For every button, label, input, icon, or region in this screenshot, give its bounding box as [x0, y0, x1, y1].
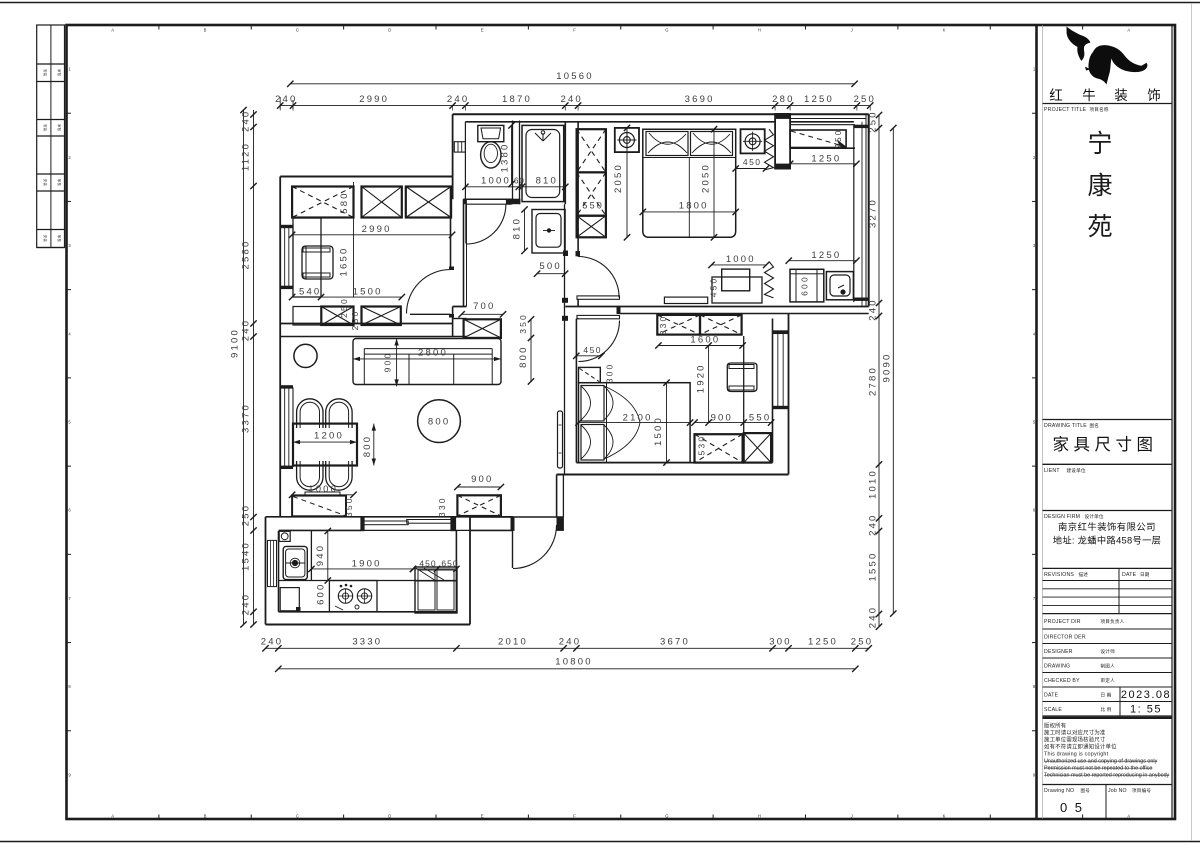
svg-text:9090: 9090 [882, 353, 893, 383]
svg-text:350: 350 [344, 496, 354, 517]
svg-text:C: C [296, 28, 299, 33]
svg-text:H: H [758, 814, 761, 819]
svg-text:1650: 1650 [338, 247, 349, 277]
svg-text:1920: 1920 [695, 363, 706, 393]
svg-text:1000: 1000 [726, 254, 756, 265]
svg-text:F: F [573, 814, 576, 819]
svg-text:250: 250 [851, 637, 873, 648]
svg-text:2050: 2050 [613, 163, 624, 193]
svg-text:580: 580 [339, 191, 350, 213]
svg-text:350: 350 [518, 313, 528, 334]
svg-text:J: J [851, 28, 853, 33]
svg-text:PROJECT DIR: PROJECT DIR [1044, 619, 1081, 625]
svg-text:1500: 1500 [353, 287, 383, 298]
svg-text:D: D [388, 814, 391, 819]
svg-text:2780: 2780 [868, 366, 879, 396]
svg-text:红: 红 [1049, 88, 1063, 103]
svg-text:项目负责人: 项目负责人 [1101, 618, 1125, 625]
svg-text:700: 700 [473, 301, 495, 312]
svg-text:K: K [943, 28, 946, 33]
svg-text:施工单位需现场核验尺寸: 施工单位需现场核验尺寸 [1044, 736, 1106, 744]
svg-text:E: E [481, 814, 484, 819]
svg-text:审核: 审核 [57, 235, 62, 243]
svg-text:250: 250 [339, 297, 349, 318]
svg-text:530: 530 [697, 435, 707, 456]
svg-text:240: 240 [241, 593, 252, 615]
svg-text:600: 600 [316, 582, 327, 604]
svg-text:1120: 1120 [241, 142, 252, 171]
svg-text:3330: 3330 [352, 637, 382, 648]
svg-text:900: 900 [383, 352, 393, 373]
svg-text:1800: 1800 [679, 201, 709, 212]
svg-text:3690: 3690 [685, 94, 715, 105]
svg-text:D: D [388, 28, 391, 33]
svg-text:宁: 宁 [1087, 130, 1112, 158]
svg-text:240: 240 [559, 637, 581, 648]
svg-text:审核: 审核 [57, 179, 62, 187]
svg-text:G: G [665, 28, 668, 33]
svg-text:南京红牛装饰有限公司: 南京红牛装饰有限公司 [1058, 521, 1156, 532]
svg-text:项目名称: 项目名称 [1090, 106, 1109, 113]
svg-text:1250: 1250 [808, 637, 838, 648]
svg-text:F: F [573, 28, 576, 33]
svg-text:2023.08: 2023.08 [1121, 689, 1171, 701]
svg-text:2010: 2010 [498, 637, 528, 648]
svg-text:G: G [665, 814, 668, 819]
svg-text:描述: 描述 [1079, 571, 1089, 578]
svg-text:安装: 安装 [43, 235, 48, 243]
svg-text:450: 450 [583, 345, 602, 355]
svg-text:250: 250 [868, 110, 879, 132]
svg-text:安装: 安装 [43, 69, 48, 77]
svg-text:审定人: 审定人 [1101, 677, 1116, 684]
svg-text:J: J [851, 814, 853, 819]
svg-text:900: 900 [471, 474, 493, 485]
svg-text:饰: 饰 [1147, 88, 1161, 103]
svg-text:Unauthorized use and copying o: Unauthorized use and copying of drawings… [1044, 759, 1158, 765]
svg-text:项目编号: 项目编号 [1132, 787, 1151, 794]
svg-text:330: 330 [437, 496, 447, 517]
svg-text:9100: 9100 [230, 328, 241, 358]
svg-text:REVISIONS: REVISIONS [1044, 572, 1074, 578]
svg-text:比 例: 比 例 [1101, 706, 1112, 713]
svg-text:550: 550 [749, 412, 771, 423]
svg-text:550: 550 [582, 201, 604, 211]
svg-text:810: 810 [536, 176, 558, 187]
svg-text:1380: 1380 [500, 143, 511, 173]
svg-text:DESIGNER: DESIGNER [1044, 649, 1073, 655]
svg-text:装: 装 [1114, 88, 1128, 103]
svg-text:DATE: DATE [1122, 572, 1137, 578]
svg-text:1900: 1900 [352, 559, 382, 570]
svg-text:60: 60 [514, 177, 525, 186]
svg-text:330: 330 [658, 315, 668, 336]
svg-text:1250: 1250 [804, 94, 834, 105]
svg-text:800: 800 [428, 417, 450, 428]
svg-text:版权所有: 版权所有 [1044, 722, 1067, 730]
svg-text:安装: 安装 [43, 124, 48, 132]
svg-text:1: 55: 1: 55 [1130, 704, 1162, 716]
svg-text:如有不符请立即通知设计单位: 如有不符请立即通知设计单位 [1044, 743, 1117, 751]
svg-text:250: 250 [241, 504, 252, 526]
svg-text:H: H [758, 28, 761, 33]
svg-text:施工时请以对应尺寸为准: 施工时请以对应尺寸为准 [1044, 729, 1106, 737]
svg-text:K: K [943, 814, 946, 819]
svg-text:SCALE: SCALE [1044, 707, 1062, 713]
svg-text:240: 240 [868, 513, 879, 535]
svg-text:2580: 2580 [241, 240, 252, 270]
svg-text:2800: 2800 [418, 348, 448, 359]
svg-text:1540: 1540 [241, 541, 252, 571]
svg-text:800: 800 [362, 435, 373, 457]
svg-text:A: A [111, 28, 114, 33]
svg-text:DIRECTOR DER: DIRECTOR DER [1044, 635, 1086, 641]
svg-text:1200: 1200 [314, 430, 344, 441]
svg-text:810: 810 [512, 217, 523, 239]
svg-text:1010: 1010 [868, 469, 879, 499]
svg-text:280: 280 [772, 94, 794, 105]
svg-text:DATE: DATE [1044, 693, 1059, 699]
svg-text:A: A [1127, 814, 1130, 819]
svg-text:LIENT: LIENT [1044, 468, 1060, 474]
svg-text:审核: 审核 [57, 69, 62, 77]
svg-text:DESIGN FIRM: DESIGN FIRM [1044, 514, 1080, 520]
svg-text:240: 240 [241, 319, 252, 341]
svg-text:Drawing NO: Drawing NO [1044, 788, 1074, 794]
svg-text:240: 240 [275, 94, 297, 105]
svg-text:制图人: 制图人 [1101, 663, 1116, 670]
svg-text:1250: 1250 [811, 250, 841, 261]
svg-text:240: 240 [241, 110, 252, 132]
svg-text:1500: 1500 [653, 416, 664, 446]
svg-text:A: A [111, 814, 114, 819]
svg-text:设计单位: 设计单位 [1085, 513, 1104, 520]
svg-text:2990: 2990 [359, 94, 389, 105]
svg-text:CHECKED BY: CHECKED BY [1044, 678, 1080, 684]
svg-text:牛: 牛 [1082, 88, 1096, 103]
svg-text:2100: 2100 [623, 412, 653, 423]
svg-text:1870: 1870 [502, 94, 532, 105]
svg-text:240: 240 [868, 298, 879, 320]
svg-text:设计师: 设计师 [1101, 648, 1116, 655]
svg-text:DRAWING TITLE: DRAWING TITLE [1044, 423, 1087, 429]
svg-text:This drawing is copyright: This drawing is copyright [1044, 752, 1109, 758]
svg-text:3270: 3270 [868, 198, 879, 228]
svg-text:1550: 1550 [868, 552, 879, 582]
svg-text:图名: 图名 [1090, 422, 1100, 429]
svg-text:苑: 苑 [1087, 213, 1112, 241]
svg-text:800: 800 [518, 345, 529, 367]
svg-text:3670: 3670 [660, 637, 690, 648]
svg-text:建设单位: 建设单位 [1067, 467, 1086, 474]
svg-text:900: 900 [711, 412, 733, 423]
svg-text:B: B [204, 28, 207, 33]
svg-text:PROJECT TITLE: PROJECT TITLE [1044, 107, 1087, 113]
svg-text:1000: 1000 [481, 176, 511, 187]
svg-text:3370: 3370 [241, 403, 252, 433]
svg-text:家具尺寸图: 家具尺寸图 [1053, 435, 1158, 454]
svg-text:1600: 1600 [690, 334, 720, 345]
svg-text:940: 940 [315, 544, 326, 566]
svg-text:Job NO: Job NO [1108, 788, 1127, 794]
svg-text:10800: 10800 [555, 656, 592, 667]
svg-text:E: E [481, 28, 484, 33]
svg-text:Technician must be reported re: Technician must be reported reproducing … [1044, 773, 1170, 779]
svg-text:540: 540 [299, 287, 321, 298]
svg-text:650: 650 [441, 559, 458, 569]
svg-text:A: A [1127, 28, 1130, 33]
svg-text:250: 250 [854, 94, 876, 105]
svg-text:C: C [296, 814, 299, 819]
svg-text:450: 450 [709, 277, 719, 298]
svg-text:450: 450 [743, 157, 762, 167]
svg-text:0 5: 0 5 [1060, 800, 1084, 815]
svg-text:240: 240 [868, 606, 879, 628]
svg-text:10560: 10560 [556, 71, 593, 82]
svg-text:250: 250 [350, 310, 360, 331]
svg-text:DRAWING: DRAWING [1044, 664, 1070, 670]
svg-text:300: 300 [605, 363, 615, 384]
svg-text:450: 450 [419, 559, 436, 569]
svg-text:2990: 2990 [362, 224, 392, 235]
svg-text:250: 250 [834, 129, 843, 149]
svg-text:审核: 审核 [57, 124, 62, 132]
svg-text:600: 600 [800, 275, 810, 296]
svg-text:地址: 龙蟠中路458号一层: 地址: 龙蟠中路458号一层 [1053, 535, 1162, 546]
svg-text:B: B [204, 814, 207, 819]
svg-text:240: 240 [261, 637, 283, 648]
svg-text:240: 240 [560, 94, 582, 105]
svg-text:240: 240 [447, 94, 469, 105]
svg-text:Permission must not be repeate: Permission must not be repeated to the o… [1044, 766, 1152, 772]
svg-text:2050: 2050 [701, 163, 712, 193]
svg-text:1250: 1250 [811, 154, 841, 165]
svg-text:500: 500 [539, 261, 561, 272]
svg-text:安装: 安装 [43, 179, 48, 187]
svg-text:1000: 1000 [308, 484, 338, 495]
svg-text:300: 300 [769, 637, 791, 648]
svg-text:康: 康 [1087, 172, 1112, 200]
